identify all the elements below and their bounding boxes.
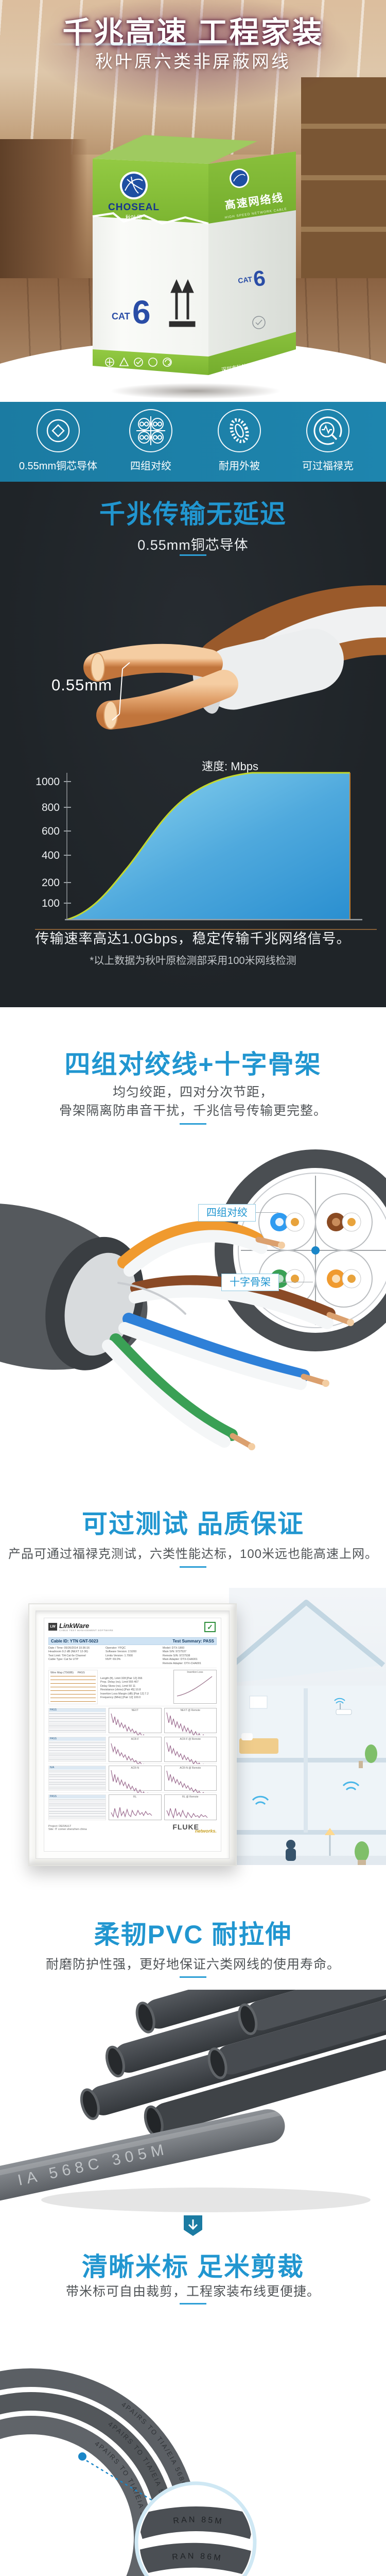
feature-band: 0.55mm铜芯导体 四组对绞 (0, 402, 386, 482)
report-wiremap: Wire Map (T568B) PASS (48, 1670, 98, 1704)
chart-caption: 传输速率高达1.0Gbps，稳定传输千兆网络信号。 (0, 927, 386, 947)
mini-chart: RL @ Remote (164, 1794, 217, 1820)
section-divider (180, 554, 206, 556)
callout-cross-skeleton: 十字骨架 (221, 1274, 279, 1291)
pvc-tubes-image: IA 568C 305M (0, 1990, 386, 2214)
copper-core-icon (37, 409, 80, 452)
twisted-pairs-icon (129, 409, 172, 452)
fluke-networks-logo: networks. (195, 1828, 217, 1834)
mini-chart: ACR-N @ Remote (164, 1766, 217, 1791)
y-tick: 800 (42, 802, 60, 814)
section-divider (180, 2303, 206, 2304)
box-cat-label-front: CAT (112, 311, 130, 321)
report-table: PASS (48, 1794, 106, 1820)
callout-line (279, 1282, 313, 1282)
feature-label: 耐用外被 (190, 457, 288, 472)
feature-label: 四组对绞 (102, 457, 200, 472)
report-row: PASS RL RL @ Remote (48, 1793, 217, 1822)
product-detail-page: CHOSEAL 秋叶原 高速网络线 HIGH SPEED NETWORK CAB… (0, 0, 386, 2576)
feature-item: 可过福禄克 (279, 402, 377, 482)
report-summary: Test Summary: PASS (172, 1638, 214, 1645)
callout-four-pairs: 四组对绞 (198, 1204, 256, 1222)
report-row: PASS ACR-F ACR-F @ Remote (48, 1735, 217, 1764)
pairs-section-title: 四组对绞线+十字骨架 (0, 1044, 386, 1081)
product-box-image: CHOSEAL 秋叶原 高速网络线 HIGH SPEED NETWORK CAB… (85, 128, 306, 396)
speed-area-chart: 速度: Mbps 1000 800 600 400 200 100 (21, 750, 381, 935)
y-tick: 400 (42, 850, 60, 861)
y-tick: 100 (42, 897, 60, 909)
linkware-logo: LinkWare (59, 1622, 89, 1630)
report-project: Project: DEFAULT Site: IT corner shenzhe… (48, 1825, 87, 1831)
meter-section-subtitle: 带米标可自由裁剪，工程家装布线更便捷。 (0, 2281, 386, 2300)
y-tick: 200 (42, 877, 60, 889)
linkware-logo-badge: LW (48, 1623, 57, 1631)
fluke-pass-icon (306, 409, 349, 452)
feature-item: 0.55mm铜芯导体 (9, 402, 107, 482)
mini-chart: NEXT (109, 1708, 162, 1733)
test-section-title: 可过测试 品质保证 (0, 1503, 386, 1540)
feature-item: 四组对绞 (102, 402, 200, 482)
chart-y-tick-labels: 1000 800 600 400 200 100 (36, 776, 60, 909)
speed-section-subtitle: 0.55mm铜芯导体 (0, 534, 386, 554)
callout-line (256, 1212, 278, 1213)
mini-chart: RL (109, 1794, 162, 1820)
chart-footnote: *以上数据为秋叶原检测部采用100米网线检测 (0, 952, 386, 967)
box-shadow (103, 382, 288, 400)
report-meta-col1: Date / Time: 05/26/2014 10:36:16 Headroo… (48, 1647, 102, 1666)
feature-label: 0.55mm铜芯导体 (9, 457, 107, 472)
copper-wire-image (0, 562, 386, 757)
y-tick: 1000 (36, 776, 60, 788)
cable-structure-image (0, 1133, 386, 1489)
linkware-logo-subtext: CABLE TEST MANAGEMENT SOFTWARE (59, 1630, 113, 1632)
feature-item: 耐用外被 (190, 402, 288, 482)
report-meta-col2: Operator: YFQC Software Version: 2.5200 … (106, 1647, 160, 1666)
mini-chart: ACR-N (109, 1766, 162, 1791)
certificate-frame: LW LinkWare CABLE TEST MANAGEMENT SOFTWA… (28, 1603, 237, 1866)
box-cat-label-side: CAT (237, 275, 253, 285)
pairs-subtitle-line2: 骨架隔离防串音干扰，千兆信号传输更完整。 (0, 1100, 386, 1119)
box-cat-number-front: 6 (132, 294, 151, 331)
report-table: N/A (48, 1766, 106, 1791)
y-tick: 600 (42, 825, 60, 837)
mini-chart: ACR-F (109, 1737, 162, 1762)
report-row: N/A ACR-N ACR-N @ Remote (48, 1764, 217, 1793)
mini-chart: NEXT @ Remote (164, 1708, 217, 1733)
report-length-block: Length (ft), Limit 328 [Pair 12] 266 Pro… (100, 1670, 171, 1704)
report-row: PASS NEXT NEXT @ Remote (48, 1706, 217, 1735)
pairs-subtitle-line1: 均匀绞距，四对分次节距， (0, 1082, 386, 1100)
page-subtitle: 秋叶原六类非屏蔽网线 (0, 47, 386, 73)
wire-diameter-label: 0.55mm (51, 676, 112, 694)
pvc-section-title: 柔韧PVC 耐拉伸 (0, 1914, 386, 1951)
report-meta-col3: Model: DTX-1800 Main S/N: 9727537 Remote… (163, 1647, 217, 1666)
meter-mark-image: 4PAIRS TO TIA/EIA 568C 87M 4PAIRS TO TIA… (0, 2321, 386, 2576)
house-illustration (229, 1588, 386, 1865)
meter-section-title: 清晰米标 足米剪裁 (0, 2246, 386, 2283)
mini-chart: ACR-F @ Remote (164, 1737, 217, 1762)
speed-section-title: 千兆传输无延迟 (0, 494, 386, 531)
mini-chart: Insertion Loss (173, 1670, 217, 1704)
pass-check-icon: ✓ (204, 1622, 216, 1632)
wiremap-lines (50, 1676, 96, 1703)
callout-dot (78, 2452, 86, 2461)
section-divider (180, 1566, 206, 1568)
pvc-section-subtitle: 耐磨防护性强，更好地保证六类网线的使用寿命。 (0, 1954, 386, 1973)
durable-jacket-icon (218, 409, 261, 452)
report-table: PASS (48, 1708, 106, 1733)
hero-flare-decor (49, 43, 265, 45)
report-cable-id: Cable ID: YTN GNT-5023 (51, 1639, 98, 1643)
report-table: PASS (48, 1737, 106, 1762)
certificate-mat: LW LinkWare CABLE TEST MANAGEMENT SOFTWA… (36, 1611, 230, 1859)
section-divider (180, 1976, 206, 1978)
chart-y-axis-title: 速度: Mbps (202, 760, 258, 773)
scroll-down-badge (184, 2215, 202, 2236)
section-divider (180, 1123, 206, 1125)
box-brand-cn: 秋叶原 (126, 214, 143, 221)
box-brand-front: CHOSEAL (108, 202, 160, 213)
test-section-subtitle: 产品可通过福禄克测试，六类性能达标，100米远也能高速上网。 (0, 1544, 386, 1562)
fluke-test-report: LW LinkWare CABLE TEST MANAGEMENT SOFTWA… (44, 1618, 221, 1852)
feature-label: 可过福禄克 (279, 457, 377, 472)
report-meta: Date / Time: 05/26/2014 10:36:16 Headroo… (48, 1645, 217, 1668)
